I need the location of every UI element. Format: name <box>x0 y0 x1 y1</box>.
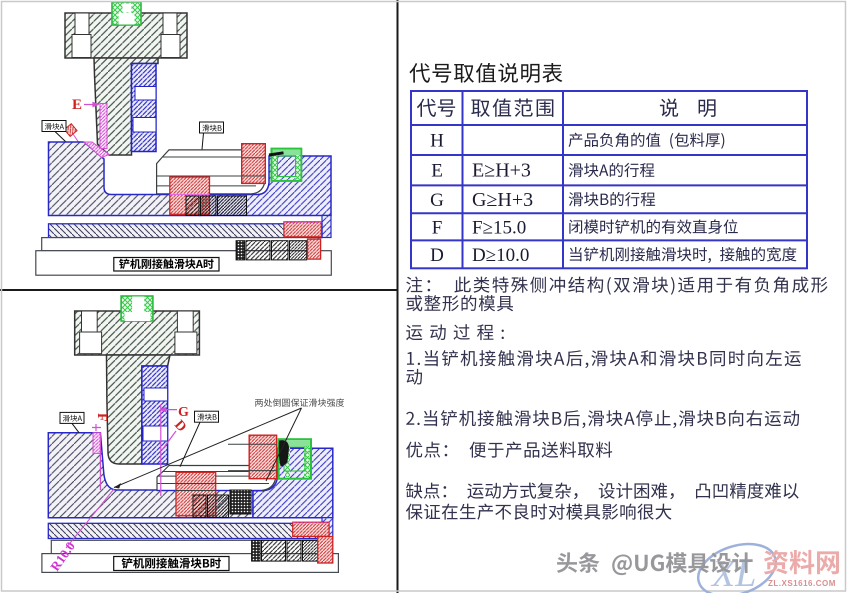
svg-text:E≥H+3: E≥H+3 <box>472 160 531 182</box>
svg-text:G≥H+3: G≥H+3 <box>472 189 533 211</box>
svg-text:G: G <box>430 190 444 211</box>
svg-text:E: E <box>72 97 82 113</box>
svg-text:E: E <box>431 161 443 182</box>
svg-text:F: F <box>432 217 443 238</box>
svg-text:F: F <box>94 413 109 422</box>
svg-text:XL: XL <box>710 553 756 593</box>
svg-text:F≥15.0: F≥15.0 <box>472 217 526 238</box>
svg-text:ZL.XS1616.COM: ZL.XS1616.COM <box>768 579 836 588</box>
svg-text:H: H <box>430 131 444 152</box>
svg-text:D≥10.0: D≥10.0 <box>472 245 529 266</box>
svg-text:D: D <box>430 245 444 266</box>
svg-text:D: D <box>171 418 189 436</box>
